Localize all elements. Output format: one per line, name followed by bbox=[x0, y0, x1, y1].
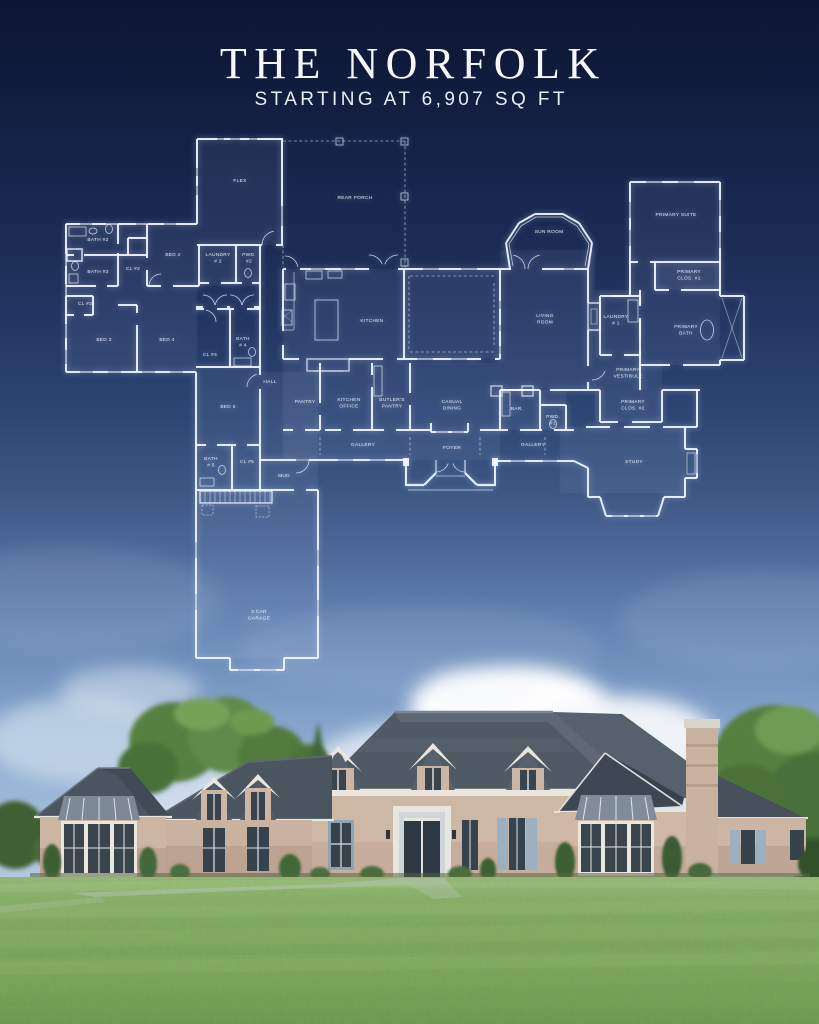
svg-text:STUDY: STUDY bbox=[625, 459, 643, 465]
svg-text:PANTRY: PANTRY bbox=[295, 399, 316, 405]
svg-text:PRIMARY: PRIMARY bbox=[674, 324, 698, 330]
svg-text:LAUNDRY: LAUNDRY bbox=[604, 314, 629, 320]
svg-text:VESTIBULE: VESTIBULE bbox=[613, 373, 642, 379]
svg-text:# 4: # 4 bbox=[239, 342, 247, 348]
svg-text:CL #4: CL #4 bbox=[203, 352, 217, 358]
svg-text:3 CAR: 3 CAR bbox=[251, 609, 267, 615]
svg-text:SUN ROOM: SUN ROOM bbox=[535, 229, 564, 235]
svg-text:BATH #2: BATH #2 bbox=[87, 237, 108, 243]
svg-text:HALL: HALL bbox=[263, 379, 276, 385]
svg-text:ROOM: ROOM bbox=[537, 319, 553, 325]
svg-text:GALLERY: GALLERY bbox=[351, 442, 376, 448]
svg-text:OFFICE: OFFICE bbox=[339, 403, 358, 409]
svg-text:BED 4: BED 4 bbox=[159, 337, 174, 343]
svg-text:CASUAL: CASUAL bbox=[442, 399, 463, 405]
svg-text:BED 3: BED 3 bbox=[96, 337, 111, 343]
svg-text:# 5: # 5 bbox=[207, 462, 215, 468]
svg-text:DINING: DINING bbox=[443, 405, 462, 411]
svg-text:KITCHEN: KITCHEN bbox=[360, 318, 383, 324]
svg-text:#1: #1 bbox=[550, 420, 556, 426]
svg-text:PWD.: PWD. bbox=[242, 252, 256, 258]
svg-text:# 1: # 1 bbox=[612, 320, 620, 326]
svg-text:BATH: BATH bbox=[679, 330, 693, 336]
svg-text:LIVING: LIVING bbox=[536, 313, 554, 319]
svg-text:BAR.: BAR. bbox=[511, 406, 523, 412]
svg-text:GARAGE: GARAGE bbox=[248, 615, 270, 621]
svg-text:MUD: MUD bbox=[278, 473, 290, 479]
svg-text:#2: #2 bbox=[246, 258, 252, 264]
svg-text:PRIMARY: PRIMARY bbox=[621, 399, 645, 405]
svg-text:FOYER: FOYER bbox=[443, 445, 461, 451]
svg-text:BED 2: BED 2 bbox=[165, 252, 180, 258]
svg-text:PWD.: PWD. bbox=[546, 414, 560, 420]
svg-text:BATH #3: BATH #3 bbox=[87, 269, 108, 275]
svg-text:CLOS. #1: CLOS. #1 bbox=[677, 275, 700, 281]
svg-text:BED 5: BED 5 bbox=[220, 404, 235, 410]
svg-text:# 2: # 2 bbox=[214, 258, 222, 264]
svg-text:PRIMARY: PRIMARY bbox=[616, 367, 640, 373]
svg-text:PRIMARY: PRIMARY bbox=[677, 269, 701, 275]
svg-text:PANTRY: PANTRY bbox=[382, 403, 403, 409]
svg-text:KITCHEN: KITCHEN bbox=[337, 397, 360, 403]
svg-text:BATH: BATH bbox=[204, 456, 218, 462]
svg-text:CL #3: CL #3 bbox=[78, 301, 92, 307]
svg-text:FLEX: FLEX bbox=[233, 178, 247, 184]
svg-text:CLOS. #2: CLOS. #2 bbox=[621, 405, 644, 411]
svg-text:BATH: BATH bbox=[236, 336, 250, 342]
svg-text:PRIMARY SUITE: PRIMARY SUITE bbox=[655, 212, 696, 218]
svg-text:CL #2: CL #2 bbox=[126, 266, 140, 272]
svg-text:REAR PORCH: REAR PORCH bbox=[338, 195, 373, 201]
svg-text:CL #5: CL #5 bbox=[240, 459, 254, 465]
svg-text:GALLERY: GALLERY bbox=[521, 442, 546, 448]
svg-text:BUTLER'S: BUTLER'S bbox=[379, 397, 404, 403]
svg-text:LAUNDRY: LAUNDRY bbox=[206, 252, 231, 258]
